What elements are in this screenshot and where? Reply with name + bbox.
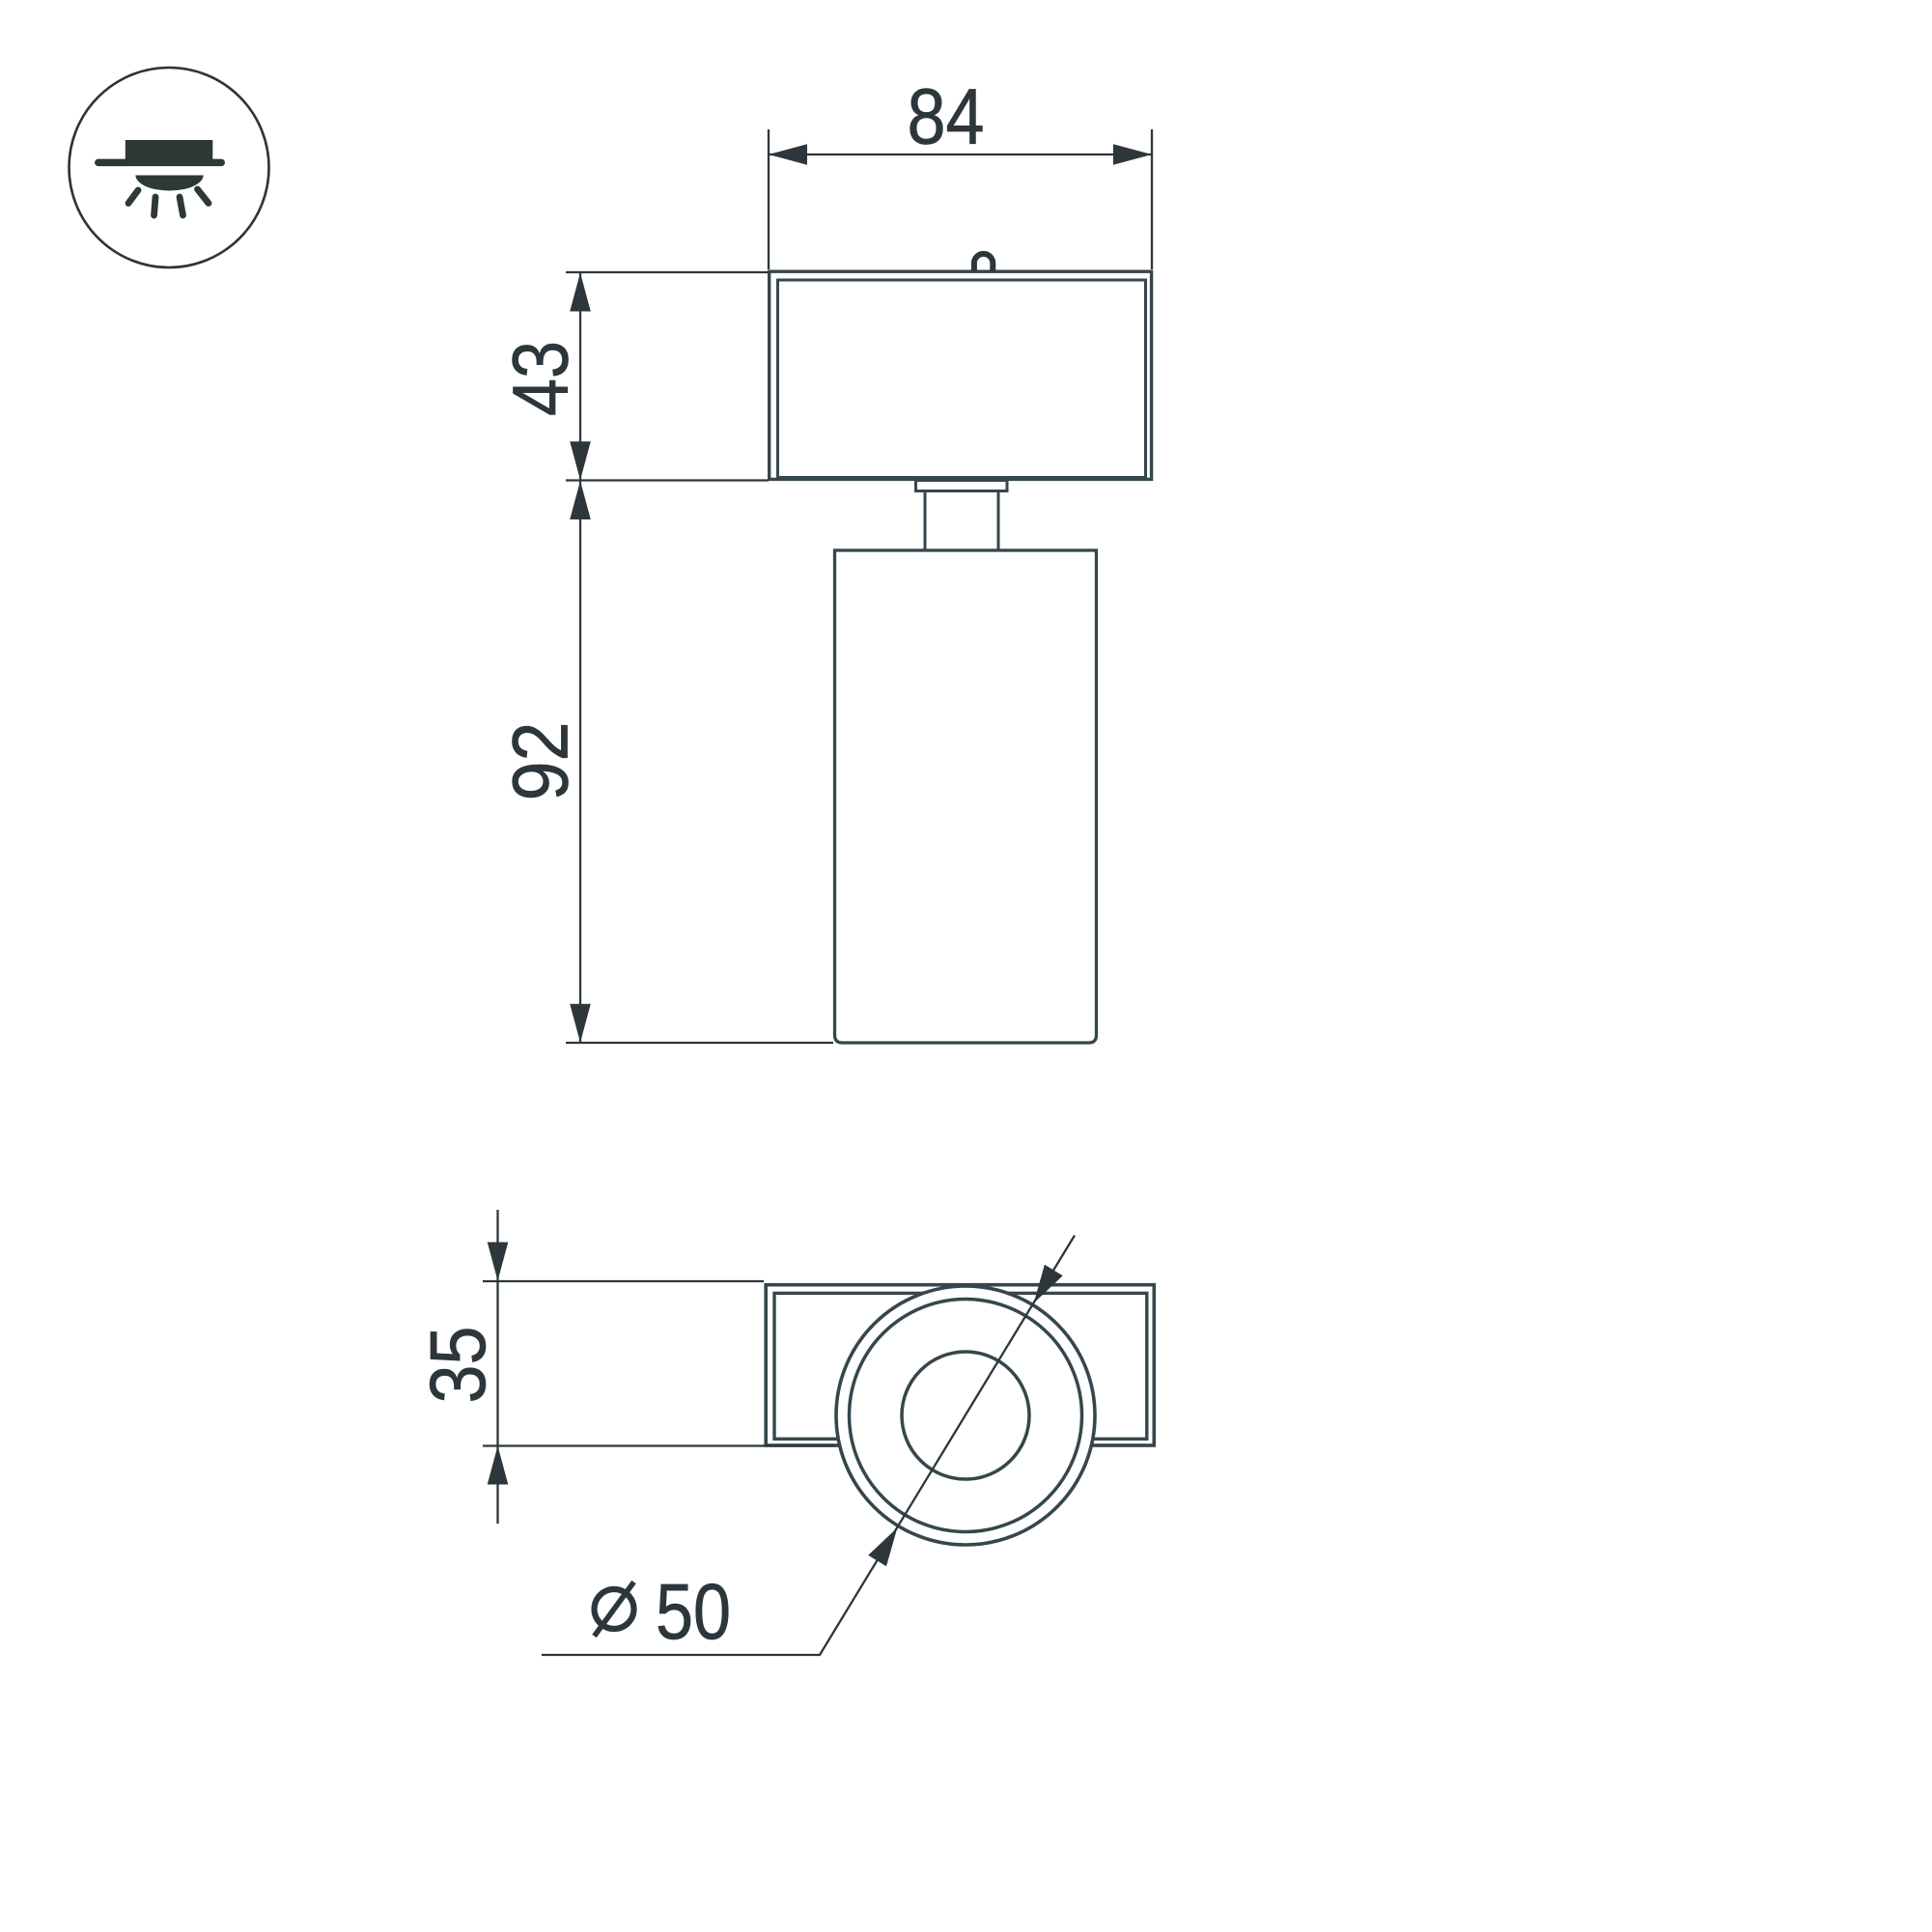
svg-text:43: 43 [497, 341, 585, 416]
svg-text:35: 35 [414, 1327, 502, 1404]
svg-text:50: 50 [656, 1568, 731, 1656]
svg-text:84: 84 [908, 73, 985, 161]
svg-text:92: 92 [497, 722, 585, 801]
